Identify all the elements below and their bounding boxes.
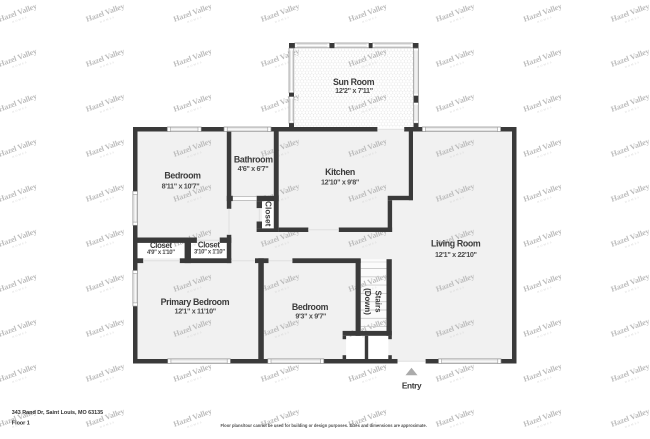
svg-text:Bedroom: Bedroom	[164, 170, 201, 180]
svg-text:12'1" x 11'10": 12'1" x 11'10"	[175, 307, 216, 316]
svg-text:Closet: Closet	[150, 241, 172, 250]
svg-text:Closet: Closet	[198, 240, 220, 249]
svg-text:Stairs: Stairs	[374, 291, 383, 314]
svg-text:Closet: Closet	[263, 201, 273, 227]
svg-text:Bedroom: Bedroom	[292, 302, 329, 312]
svg-text:8'11" x 10'7": 8'11" x 10'7"	[162, 182, 200, 191]
svg-text:4'9" x 1'10": 4'9" x 1'10"	[147, 250, 175, 256]
svg-text:9'3" x 9'7": 9'3" x 9'7"	[295, 312, 326, 321]
svg-text:343 Rand Dr, Saint Louis, MO 6: 343 Rand Dr, Saint Louis, MO 63135	[12, 410, 103, 416]
svg-text:Entry: Entry	[402, 381, 422, 391]
svg-text:Primary Bedroom: Primary Bedroom	[161, 297, 230, 307]
svg-text:Kitchen: Kitchen	[325, 167, 355, 177]
svg-text:Living Room: Living Room	[431, 239, 481, 249]
svg-text:(Down): (Down)	[363, 288, 372, 315]
svg-text:3'10" x 1'10": 3'10" x 1'10"	[194, 250, 225, 256]
svg-text:4'6" x 6'7": 4'6" x 6'7"	[238, 164, 269, 173]
svg-text:12'1" x 22'10": 12'1" x 22'10"	[435, 250, 477, 259]
svg-text:Floor 1: Floor 1	[12, 421, 30, 427]
svg-text:Floor plans/tour cannot be use: Floor plans/tour cannot be used for buil…	[221, 423, 427, 428]
svg-text:12'2" x 7'11": 12'2" x 7'11"	[335, 86, 373, 95]
svg-text:12'10" x 9'8": 12'10" x 9'8"	[321, 177, 359, 186]
